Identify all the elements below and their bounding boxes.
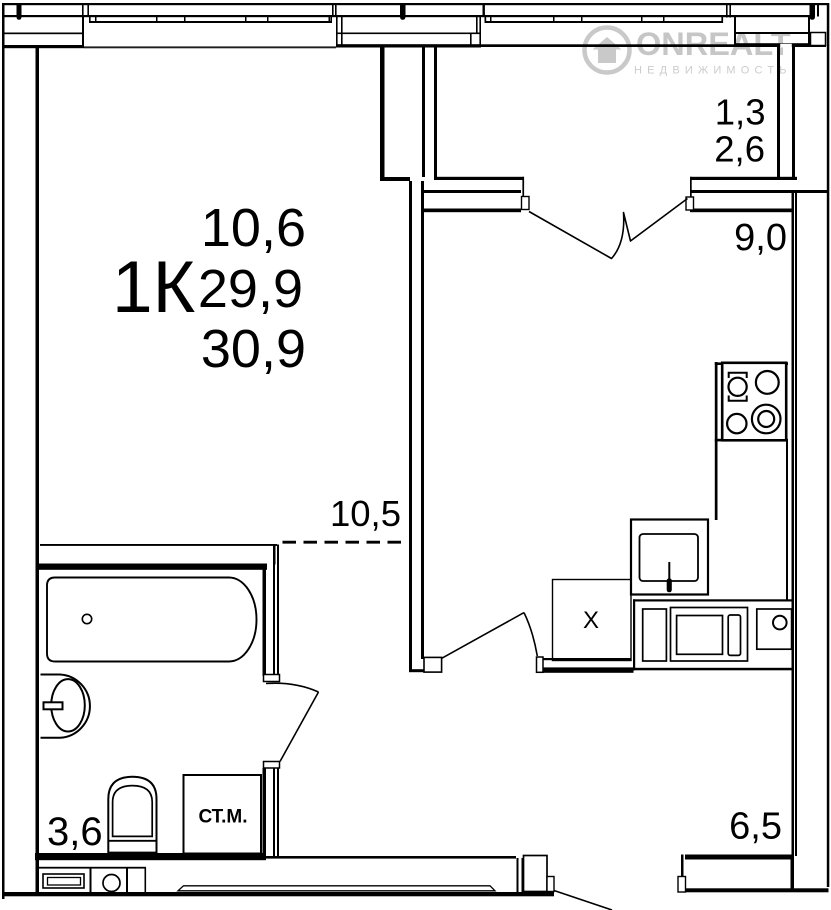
svg-text:НЕДВИЖИМОСТЬ: НЕДВИЖИМОСТЬ	[634, 65, 792, 77]
svg-text:СТ.М.: СТ.М.	[198, 807, 247, 828]
svg-text:10,5: 10,5	[330, 493, 401, 534]
svg-text:6,5: 6,5	[729, 806, 782, 848]
svg-text:Х: Х	[583, 607, 599, 634]
svg-text:10,6: 10,6	[201, 198, 306, 258]
svg-text:2,6: 2,6	[714, 129, 765, 170]
svg-text:1,3: 1,3	[715, 92, 766, 133]
svg-text:9,0: 9,0	[734, 217, 787, 259]
svg-text:3,6: 3,6	[47, 810, 103, 854]
svg-text:1К: 1К	[112, 247, 196, 328]
svg-text:30,9: 30,9	[201, 319, 306, 379]
svg-text:29,9: 29,9	[198, 259, 303, 319]
